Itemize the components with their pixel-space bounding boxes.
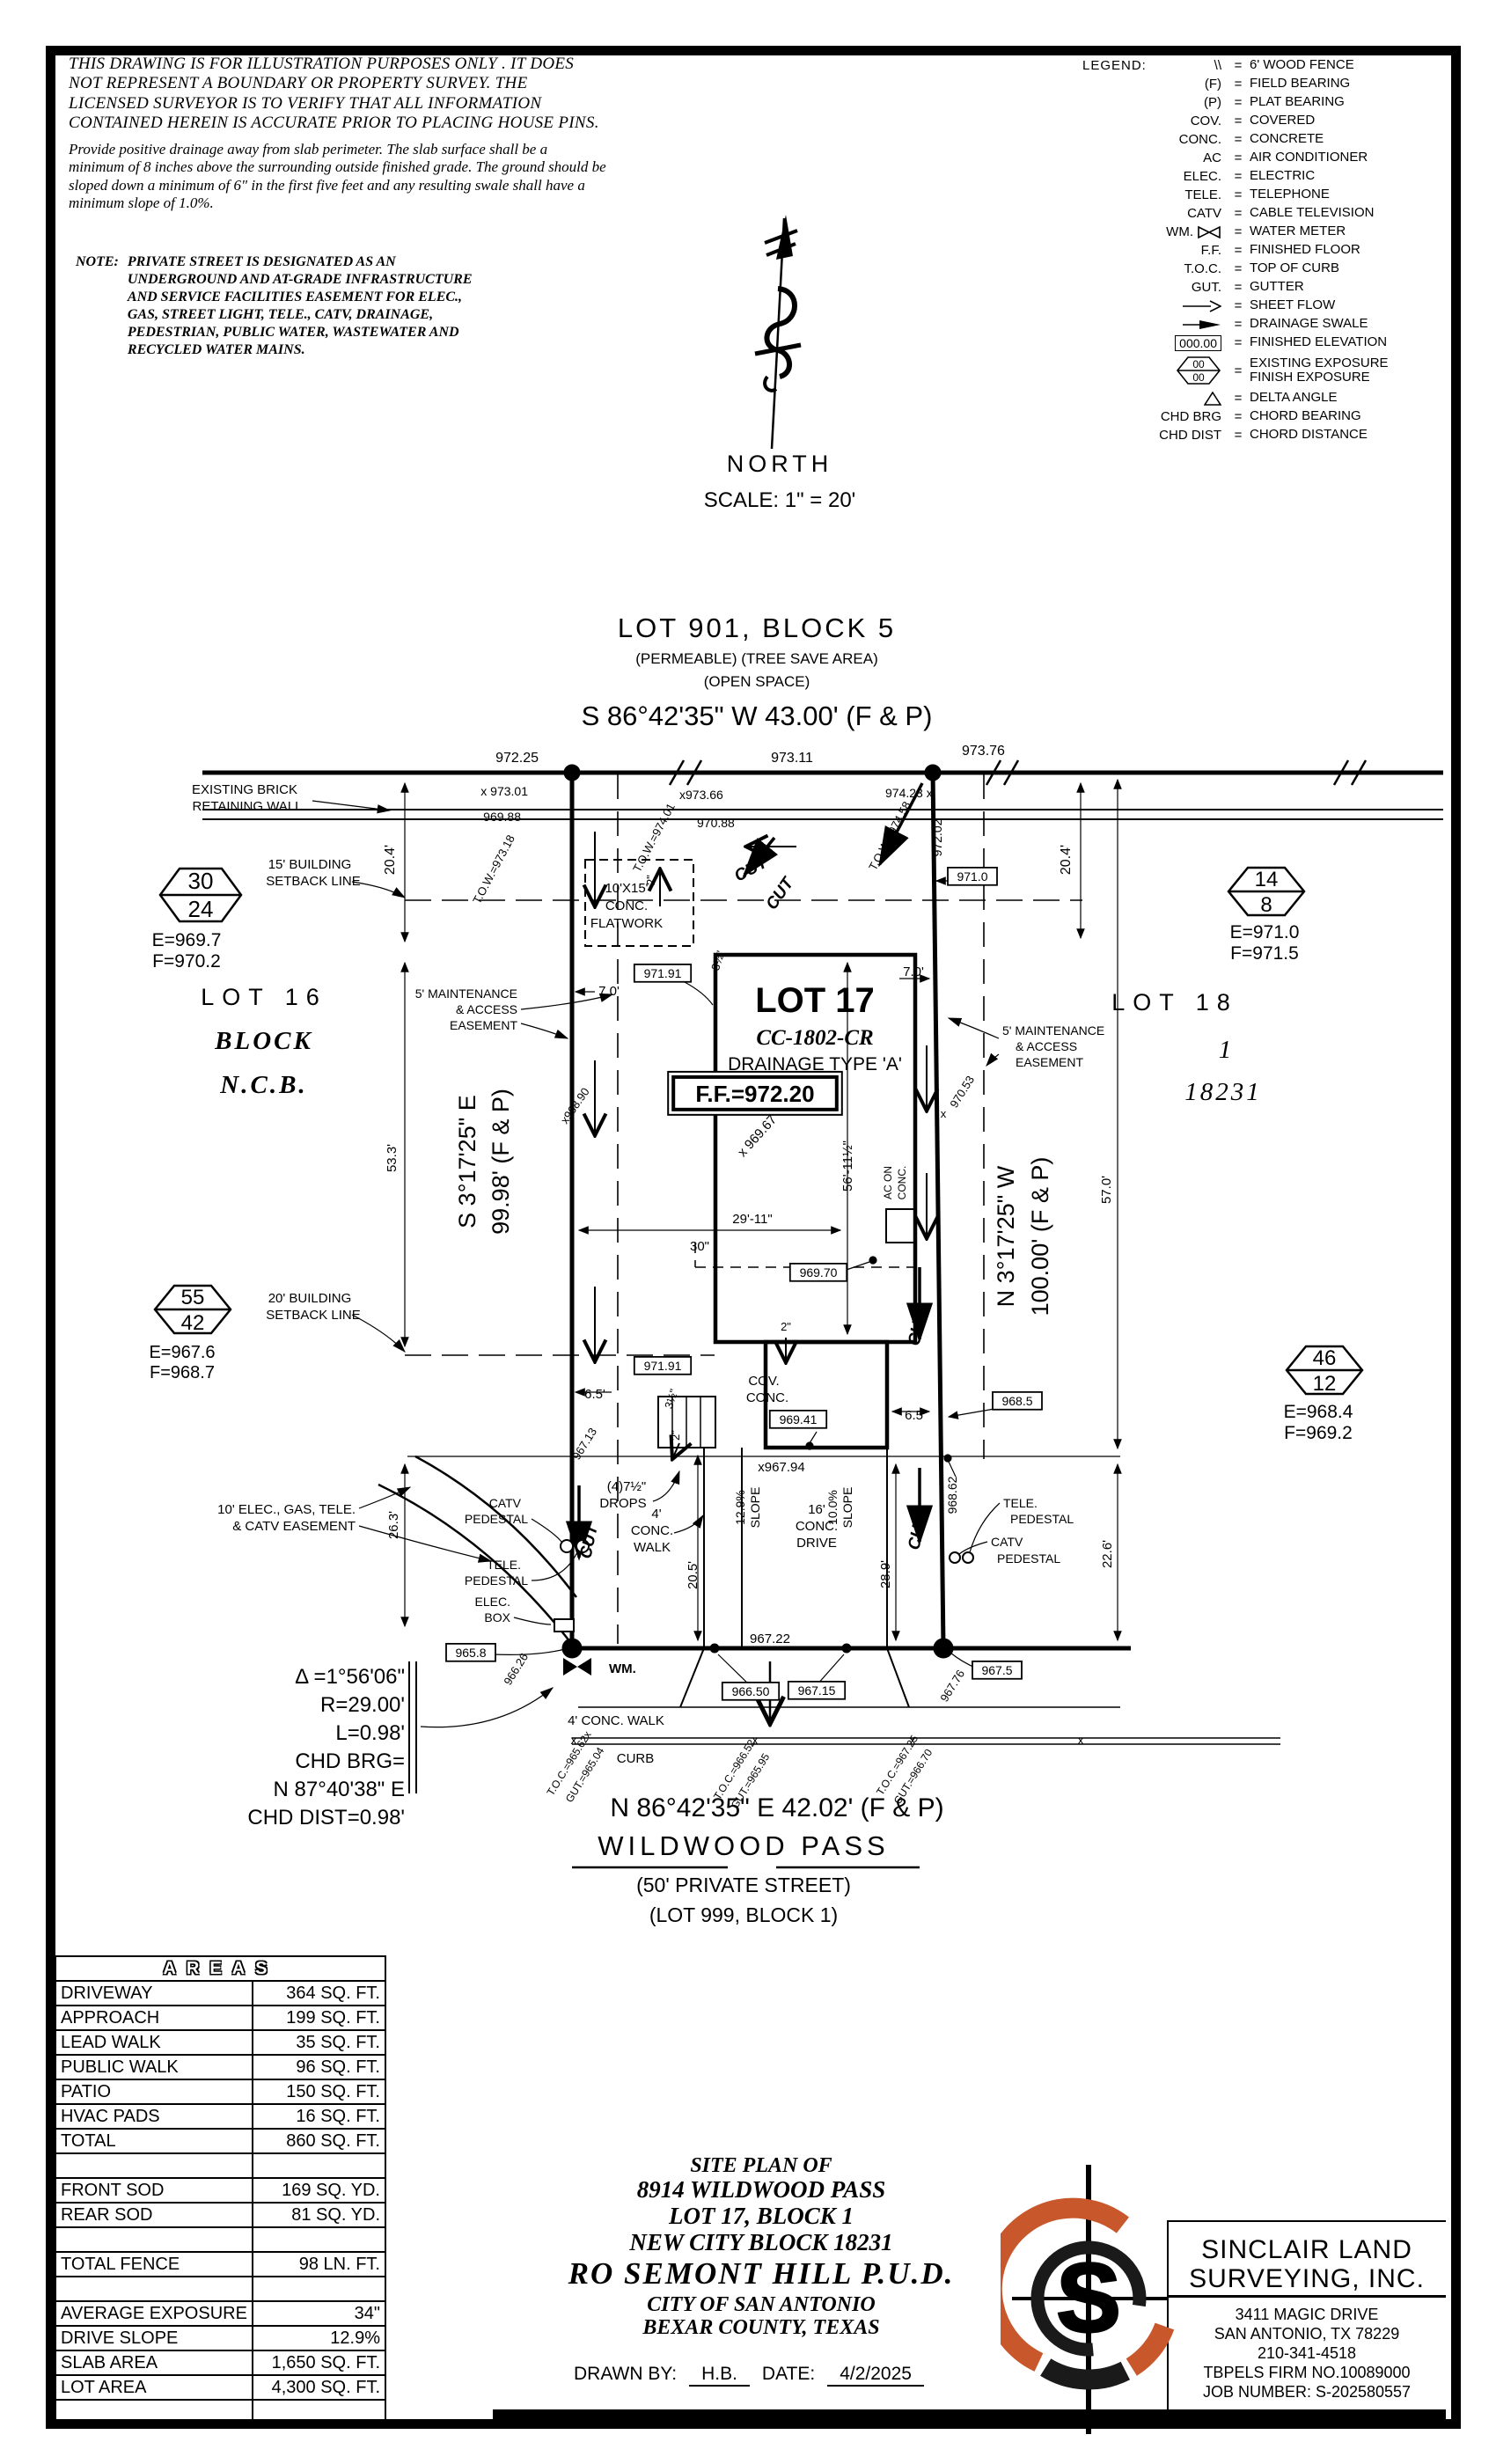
plan-label: CHD BRG=	[295, 1749, 405, 1773]
areas-row-label: SLAB AREA	[55, 2350, 253, 2375]
plan-label: CUT	[763, 874, 798, 913]
plan-label: CURB	[617, 1751, 655, 1766]
svg-text:F=968.7: F=968.7	[150, 1363, 215, 1382]
plan-label: 100.00' (F & P)	[1027, 1157, 1053, 1316]
plan-label: 20.5'	[686, 1561, 700, 1589]
plan-label: 969.88	[483, 810, 521, 824]
svg-text:F=971.5: F=971.5	[1230, 943, 1299, 964]
date-value: 4/2/2025	[827, 2364, 924, 2387]
plan-label: x967.94	[758, 1460, 804, 1475]
plan-label: 12.9%	[733, 1490, 747, 1525]
plan-label: PEDESTAL	[1010, 1512, 1074, 1526]
svg-text:E=969.7: E=969.7	[152, 930, 222, 950]
plan-label: WM.	[609, 1661, 636, 1676]
areas-row-label: REAR SOD	[55, 2203, 253, 2227]
svg-text:8: 8	[1260, 893, 1272, 917]
plan-label: SCALE: 1" = 20'	[704, 488, 856, 512]
areas-row-value	[253, 2277, 385, 2301]
title-line: SITE PLAN OF	[475, 2154, 1047, 2177]
plan-label: 20.4'	[383, 845, 398, 875]
plan-label: S 3°17'25" E	[454, 1095, 480, 1228]
areas-row: REAR SOD81 SQ. YD.	[55, 2203, 385, 2227]
plan-label: N 87°40'38" E	[274, 1778, 405, 1801]
plan-label: 966.26	[501, 1651, 531, 1688]
plan-label: 5' MAINTENANCE	[1002, 1023, 1104, 1038]
plan-label: 970.88	[697, 816, 735, 830]
plan-label: 967.15	[798, 1683, 836, 1698]
plan-label: 6.5'	[584, 1387, 605, 1402]
plan-label: TELE.	[487, 1558, 521, 1572]
retaining-wall-lines	[202, 810, 1443, 819]
plan-label: RETAINING WALL	[192, 799, 302, 814]
areas-row-value: 96 SQ. FT.	[253, 2055, 385, 2079]
title-line: CITY OF SAN ANTONIO	[475, 2293, 1047, 2316]
title-block-bottom-bar	[493, 2409, 1446, 2429]
areas-row	[55, 2153, 385, 2178]
plan-label: ELEC.	[475, 1595, 510, 1609]
company-name-line: SURVEYING, INC.	[1170, 2264, 1443, 2293]
company-divider-top	[1167, 2220, 1446, 2222]
plan-label: CUT	[731, 853, 772, 886]
areas-row-label: LEAD WALK	[55, 2030, 253, 2055]
plan-label: T.O.W.=974.01	[630, 801, 678, 874]
plan-label: 972.02	[930, 818, 944, 856]
plan-labels: LOT 901, BLOCK 5(PERMEABLE) (TREE SAVE A…	[192, 451, 1262, 1926]
plan-label: x	[941, 1107, 947, 1120]
plan-label: WALK	[634, 1540, 671, 1555]
areas-row: AVERAGE EXPOSURE34"	[55, 2301, 385, 2326]
plan-label: EXISTING BRICK	[192, 782, 297, 797]
areas-row-label: PATIO	[55, 2079, 253, 2104]
drawn-by-row: DRAWN BY: H.B. DATE: 4/2/2025	[574, 2364, 924, 2387]
plan-label: NORTH	[727, 451, 833, 477]
plan-label: 99.98' (F & P)	[488, 1089, 514, 1235]
plan-label: 970.53	[947, 1074, 977, 1111]
areas-row: DRIVEWAY364 SQ. FT.	[55, 1981, 385, 2006]
plan-label: 10' ELEC., GAS, TELE.	[217, 1502, 356, 1517]
company-info: 3411 MAGIC DRIVE SAN ANTONIO, TX 78229 2…	[1170, 2306, 1443, 2402]
areas-row-value: 364 SQ. FT.	[253, 1981, 385, 2006]
wood-fence-line	[202, 760, 1443, 785]
plan-label: 15' BUILDING	[268, 857, 352, 872]
plan-label: L=0.98'	[335, 1721, 405, 1745]
plan-label: 18231	[1184, 1078, 1262, 1106]
plan-label: 20.4'	[1059, 845, 1074, 875]
areas-row-label: DRIVEWAY	[55, 1981, 253, 2006]
exposure-marker-east-top: 14 8 E=971.0 F=971.5	[1228, 868, 1304, 964]
exposure-marker-west-top: 30 24 E=969.7 F=970.2	[152, 868, 241, 972]
company-address: 3411 MAGIC DRIVE	[1170, 2306, 1443, 2325]
plan-label: EASEMENT	[450, 1018, 517, 1032]
plan-label: 2"	[644, 875, 657, 885]
plan-label: 1	[1219, 1036, 1232, 1064]
plan-label: & ACCESS	[456, 1002, 517, 1016]
date-label: DATE:	[762, 2364, 815, 2385]
plan-label: PEDESTAL	[465, 1512, 528, 1526]
areas-row-value: 35 SQ. FT.	[253, 2030, 385, 2055]
plan-label: CATV	[489, 1496, 522, 1510]
areas-row-value: 81 SQ. YD.	[253, 2203, 385, 2227]
areas-row-value: 169 SQ. YD.	[253, 2178, 385, 2203]
areas-row-label: HVAC PADS	[55, 2104, 253, 2129]
plan-label: 26.3'	[386, 1511, 401, 1539]
plan-label: x968.90	[558, 1085, 592, 1126]
plan-label: CC-1802-CR	[756, 1026, 873, 1050]
plan-label: 20' BUILDING	[268, 1291, 352, 1306]
areas-row-value: 16 SQ. FT.	[253, 2104, 385, 2129]
plan-label: 30"	[690, 1239, 709, 1254]
svg-text:12: 12	[1313, 1372, 1337, 1396]
plan-label: N.C.B.	[219, 1071, 307, 1099]
plan-label: N 3°17'25" W	[993, 1165, 1019, 1307]
areas-row	[55, 2277, 385, 2301]
areas-row-label: TOTAL FENCE	[55, 2252, 253, 2277]
plan-label: PEDESTAL	[997, 1551, 1060, 1566]
plan-label: 965.8	[455, 1646, 486, 1660]
svg-text:42: 42	[181, 1311, 205, 1335]
plan-label: (50' PRIVATE STREET)	[636, 1874, 851, 1896]
plan-label: 972.25	[495, 751, 539, 766]
site-plan-page: THIS DRAWING IS FOR ILLUSTRATION PURPOSE…	[0, 0, 1496, 2464]
plan-label: DROPS	[599, 1496, 646, 1511]
plan-label: & CATV EASEMENT	[232, 1519, 356, 1534]
plan-label: CHD DIST=0.98'	[247, 1806, 405, 1830]
exposure-marker-west-bottom: 55 42 E=967.6 F=968.7	[149, 1286, 231, 1382]
areas-row: DRIVE SLOPE12.9%	[55, 2326, 385, 2350]
areas-row-value: 199 SQ. FT.	[253, 2006, 385, 2030]
plan-label: BOX	[484, 1610, 510, 1624]
areas-title: AREAS	[55, 1956, 385, 1981]
plan-label: 971.0	[957, 869, 987, 884]
plan-label: SETBACK LINE	[266, 1308, 361, 1323]
exposure-marker-east-bottom: 46 12 E=968.4 F=969.2	[1284, 1346, 1362, 1443]
leader-lines	[312, 801, 1000, 1793]
plan-label: CONC.	[605, 898, 648, 913]
plan-label: 4' CONC. WALK	[568, 1713, 664, 1728]
plan-label: Δ =1°56'06"	[295, 1665, 405, 1689]
plan-label: 7.0'	[598, 984, 620, 999]
areas-row-value: 860 SQ. FT.	[253, 2129, 385, 2153]
plan-label: (LOT 999, BLOCK 1)	[649, 1903, 838, 1926]
areas-row: SLAB AREA1,650 SQ. FT.	[55, 2350, 385, 2375]
title-line: 8914 WILDWOOD PASS	[475, 2177, 1047, 2204]
plan-label: 10.0%	[825, 1490, 840, 1525]
areas-row: APPROACH199 SQ. FT.	[55, 2006, 385, 2030]
plan-label: 57.0'	[1099, 1176, 1114, 1204]
areas-row-value: 34"	[253, 2301, 385, 2326]
plan-label: PEDESTAL	[465, 1573, 528, 1588]
plan-label: x 973.01	[480, 784, 528, 798]
areas-row-label	[55, 2227, 253, 2252]
plan-label: 7.0'	[903, 964, 924, 979]
plan-label: 974.23 x	[885, 786, 933, 800]
plan-label: 3½"	[662, 1387, 680, 1411]
plan-label: 973.11	[771, 751, 813, 766]
north-arrow-icon	[755, 215, 801, 449]
company-address: SAN ANTONIO, TX 78229	[1170, 2325, 1443, 2344]
title-line: NEW CITY BLOCK 18231	[475, 2230, 1047, 2256]
plan-label: EASEMENT	[1016, 1055, 1083, 1069]
plan-label: S 86°42'35" W 43.00' (F & P)	[582, 700, 933, 731]
plan-label: x 969.67	[735, 1112, 780, 1160]
plan-label: 29'-11"	[732, 1212, 772, 1227]
plan-label: SLOPE	[748, 1487, 762, 1529]
svg-text:E=967.6: E=967.6	[149, 1343, 215, 1362]
plan-label: CUT	[905, 1309, 930, 1347]
plan-label: WILDWOOD PASS	[598, 1830, 889, 1861]
plan-label: CONC.	[896, 1166, 908, 1200]
plan-label: SETBACK LINE	[266, 874, 361, 889]
plan-label: x	[1078, 1733, 1084, 1747]
logo-letter: S	[1056, 2244, 1120, 2352]
plan-label: 969.70	[800, 1265, 838, 1280]
plan-label: 968.62	[945, 1476, 959, 1514]
plan-label: FLATWORK	[590, 916, 663, 931]
plan-label: LOT 16	[201, 984, 327, 1010]
areas-row-value: 1,650 SQ. FT.	[253, 2350, 385, 2375]
company-job-number: JOB NUMBER: S-202580557	[1170, 2383, 1443, 2402]
plan-label: 6.5'	[905, 1408, 926, 1423]
svg-text:14: 14	[1255, 868, 1279, 891]
plan-label: BLOCK	[214, 1027, 313, 1055]
plan-label: 2"	[781, 1320, 791, 1333]
electric-box-icon	[554, 1619, 574, 1632]
areas-row-value: 150 SQ. FT.	[253, 2079, 385, 2104]
areas-row-label: AVERAGE EXPOSURE	[55, 2301, 253, 2326]
plan-label: 967.22	[750, 1632, 790, 1646]
areas-row-label: APPROACH	[55, 2006, 253, 2030]
areas-row: HVAC PADS16 SQ. FT.	[55, 2104, 385, 2129]
plan-label: 967.5	[981, 1663, 1012, 1677]
plan-label: 4'	[651, 1507, 661, 1522]
plan-label: CUT	[905, 1513, 930, 1551]
plan-label: 53.3'	[385, 1144, 400, 1172]
areas-row: FRONT SOD169 SQ. YD.	[55, 2178, 385, 2203]
areas-row: LOT AREA4,300 SQ. FT.	[55, 2375, 385, 2400]
areas-table: AREAS DRIVEWAY364 SQ. FT.APPROACH199 SQ.…	[55, 1955, 386, 2425]
areas-row-label: TOTAL	[55, 2129, 253, 2153]
plan-label: 22.6'	[1100, 1540, 1115, 1568]
company-name-line: SINCLAIR LAND	[1170, 2235, 1443, 2264]
areas-row-label: FRONT SOD	[55, 2178, 253, 2203]
plan-label: CONC.	[746, 1390, 788, 1405]
plan-label: (4)7½"	[607, 1479, 647, 1494]
svg-text:F=969.2: F=969.2	[1284, 1423, 1353, 1443]
title-block: SITE PLAN OF 8914 WILDWOOD PASS LOT 17, …	[475, 2154, 1047, 2340]
areas-row-value	[253, 2227, 385, 2252]
plan-label: x973.66	[679, 788, 723, 802]
plan-label: LOT 901, BLOCK 5	[618, 612, 896, 643]
plan-label: & ACCESS	[1016, 1039, 1077, 1053]
company-firm-number: TBPELS FIRM NO.10089000	[1170, 2364, 1443, 2383]
water-meter-icon	[563, 1658, 591, 1676]
plan-label: LOT 18	[1111, 989, 1238, 1016]
areas-row-label	[55, 2153, 253, 2178]
plan-label: LOT 17	[755, 981, 875, 1020]
areas-row-label: LOT AREA	[55, 2375, 253, 2400]
plan-label: 2"	[669, 1430, 682, 1441]
plan-label: SLOPE	[840, 1487, 854, 1529]
plan-label: 969.41	[780, 1412, 818, 1426]
title-line-pud: RO SEMONT HILL P.U.D.	[475, 2257, 1047, 2292]
svg-text:F=970.2: F=970.2	[152, 951, 221, 972]
walk-and-drive	[680, 1448, 909, 1707]
plan-label: N 86°42'35" E 42.02' (F & P)	[610, 1793, 943, 1822]
plan-label: 971.91	[644, 1359, 682, 1373]
plan-label: 968.5	[1001, 1394, 1032, 1408]
areas-row-label: PUBLIC WALK	[55, 2055, 253, 2079]
plan-label: 16'	[808, 1502, 825, 1517]
areas-row-value: 4,300 SQ. FT.	[253, 2375, 385, 2400]
svg-text:E=971.0: E=971.0	[1230, 922, 1300, 942]
areas-row-value	[253, 2400, 385, 2424]
plan-label: T.O.W.=973.18	[470, 832, 517, 906]
plan-label: AC ON	[882, 1166, 894, 1199]
areas-row-value: 12.9%	[253, 2326, 385, 2350]
areas-row-label	[55, 2277, 253, 2301]
plan-label: CATV	[991, 1535, 1023, 1549]
plan-label: 5' MAINTENANCE	[415, 986, 517, 1001]
plan-label: DRIVE	[796, 1536, 837, 1551]
plan-label: COV.	[748, 1374, 779, 1389]
plan-label: 28.9'	[878, 1560, 893, 1588]
plan-label: 56'-11½"	[840, 1140, 855, 1192]
plan-label: R=29.00'	[320, 1693, 405, 1717]
areas-row	[55, 2227, 385, 2252]
plan-label: 3½"	[708, 949, 727, 972]
areas-row-value: 98 LN. FT.	[253, 2252, 385, 2277]
areas-row: TOTAL860 SQ. FT.	[55, 2129, 385, 2153]
plan-label: 967.76	[937, 1668, 967, 1705]
svg-text:E=968.4: E=968.4	[1284, 1402, 1353, 1422]
areas-row: LEAD WALK35 SQ. FT.	[55, 2030, 385, 2055]
areas-row: PUBLIC WALK96 SQ. FT.	[55, 2055, 385, 2079]
areas-row	[55, 2400, 385, 2424]
sinclair-logo-icon: S	[1001, 2158, 1177, 2439]
company-name: SINCLAIR LAND SURVEYING, INC.	[1170, 2235, 1443, 2293]
plan-label: 971.91	[644, 966, 682, 980]
plan-label: CONC.	[631, 1523, 673, 1538]
plan-label: (OPEN SPACE)	[704, 673, 810, 690]
plan-label: TELE.	[1003, 1496, 1038, 1510]
areas-row-value	[253, 2153, 385, 2178]
svg-text:24: 24	[188, 896, 214, 922]
title-line: BEXAR COUNTY, TEXAS	[475, 2316, 1047, 2339]
plan-label: 10'X15'	[605, 881, 648, 896]
svg-text:55: 55	[181, 1286, 205, 1309]
plan-label: F.F.=972.20	[695, 1081, 814, 1107]
company-phone: 210-341-4518	[1170, 2344, 1443, 2364]
plan-label: 973.76	[962, 744, 1005, 759]
svg-text:30: 30	[188, 868, 214, 894]
plan-label: (PERMEABLE) (TREE SAVE AREA)	[635, 650, 878, 667]
title-line: LOT 17, BLOCK 1	[475, 2204, 1047, 2230]
svg-text:46: 46	[1313, 1346, 1337, 1370]
plan-label: 966.50	[732, 1684, 770, 1698]
areas-row-label: DRIVE SLOPE	[55, 2326, 253, 2350]
drawn-by-label: DRAWN BY:	[574, 2364, 677, 2385]
company-divider-rule	[1167, 2295, 1446, 2298]
drawn-by-value: H.B.	[689, 2364, 750, 2387]
areas-row: PATIO150 SQ. FT.	[55, 2079, 385, 2104]
areas-row-label	[55, 2400, 253, 2424]
areas-row: TOTAL FENCE98 LN. FT.	[55, 2252, 385, 2277]
